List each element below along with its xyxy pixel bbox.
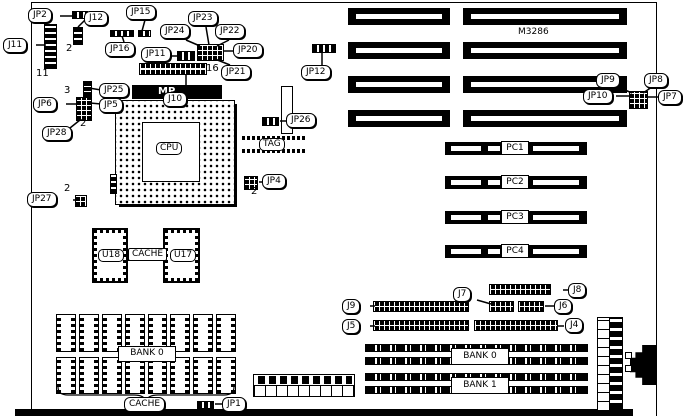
jp1-label: JP1 bbox=[222, 397, 246, 412]
j8-label: J8 bbox=[568, 283, 586, 298]
simm-bank0-label: BANK 0 bbox=[451, 348, 509, 365]
j11-pin-count: 11 bbox=[36, 69, 49, 79]
jp25-label: JP25 bbox=[99, 83, 129, 98]
jp21-label: JP21 bbox=[221, 65, 251, 80]
jp20-label: JP20 bbox=[233, 43, 263, 58]
j12-label: J12 bbox=[84, 11, 108, 26]
cache-bottom-label: CACHE bbox=[124, 397, 165, 412]
jp6-pin-count: 2 bbox=[80, 119, 86, 129]
cache-chip-label: CACHE bbox=[128, 248, 167, 261]
jp6-label: JP6 bbox=[33, 97, 57, 112]
tag-label: TAG bbox=[259, 138, 285, 151]
jp8-label: JP8 bbox=[644, 73, 668, 88]
j6-label: J6 bbox=[554, 299, 572, 314]
jp16-label: JP16 bbox=[105, 42, 135, 57]
u17-label: U17 bbox=[170, 249, 196, 262]
jp2-label: JP2 bbox=[28, 8, 52, 23]
jp26-label: JP26 bbox=[286, 113, 316, 128]
jp7-label: JP7 bbox=[658, 90, 682, 105]
dip-bank0-label: BANK 0 bbox=[118, 346, 176, 362]
jp15-label: JP15 bbox=[126, 5, 156, 20]
jp22-label: JP22 bbox=[215, 24, 245, 39]
j9-label: J9 bbox=[342, 299, 360, 314]
jp12-label: JP12 bbox=[301, 65, 331, 80]
cpu-label: CPU bbox=[156, 142, 182, 155]
jp4-pin-count: 2 bbox=[251, 187, 257, 197]
jp27-pin-count: 2 bbox=[64, 184, 70, 194]
jp5-label: JP5 bbox=[99, 98, 123, 113]
j10-label: J10 bbox=[163, 92, 187, 107]
simm-bank1-label: BANK 1 bbox=[451, 377, 509, 394]
jp4-label: JP4 bbox=[262, 174, 286, 189]
motherboard-diagram: M3286 PC1 PC2 PC3 PC4 CPU MP 16 TAG U1 bbox=[0, 0, 690, 416]
jp27-label: JP27 bbox=[27, 192, 57, 207]
jp23-label: JP23 bbox=[188, 11, 218, 26]
j11-label: J11 bbox=[3, 38, 27, 53]
leader-lines bbox=[0, 0, 690, 416]
j10-pin-count: 16 bbox=[206, 64, 219, 74]
jp9-label: JP9 bbox=[596, 73, 620, 88]
jp5-pin-count: 3 bbox=[64, 86, 70, 96]
jp28-label: JP28 bbox=[42, 126, 72, 141]
j12-pin-count: 2 bbox=[66, 44, 72, 54]
jp11-label: JP11 bbox=[141, 47, 171, 62]
u18-label: U18 bbox=[98, 249, 124, 262]
jp24-label: JP24 bbox=[160, 24, 190, 39]
j4-label: J4 bbox=[565, 318, 583, 333]
jp10-label: JP10 bbox=[583, 89, 613, 104]
j7-label: J7 bbox=[453, 287, 471, 302]
j5-label: J5 bbox=[342, 319, 360, 334]
